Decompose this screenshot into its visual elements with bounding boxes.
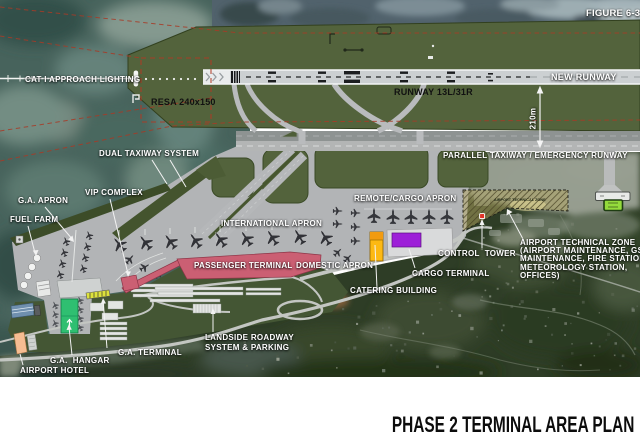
svg-text:AIRPORT TECHNICAL ZONE: AIRPORT TECHNICAL ZONE [494,198,546,202]
